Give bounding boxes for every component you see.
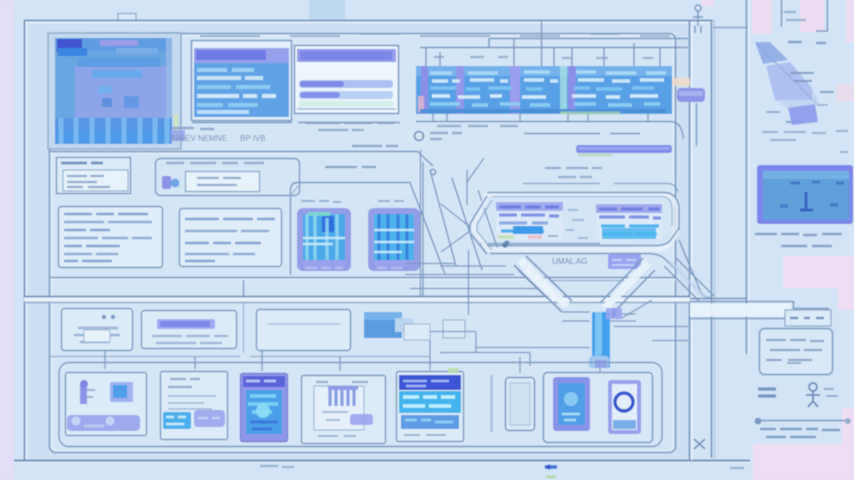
svg-text:BP IVB: BP IVB <box>240 134 266 143</box>
svg-text:AIAIEV NEMNE: AIAIEV NEMNE <box>170 134 227 143</box>
svg-text:UMAL AG: UMAL AG <box>552 257 587 266</box>
